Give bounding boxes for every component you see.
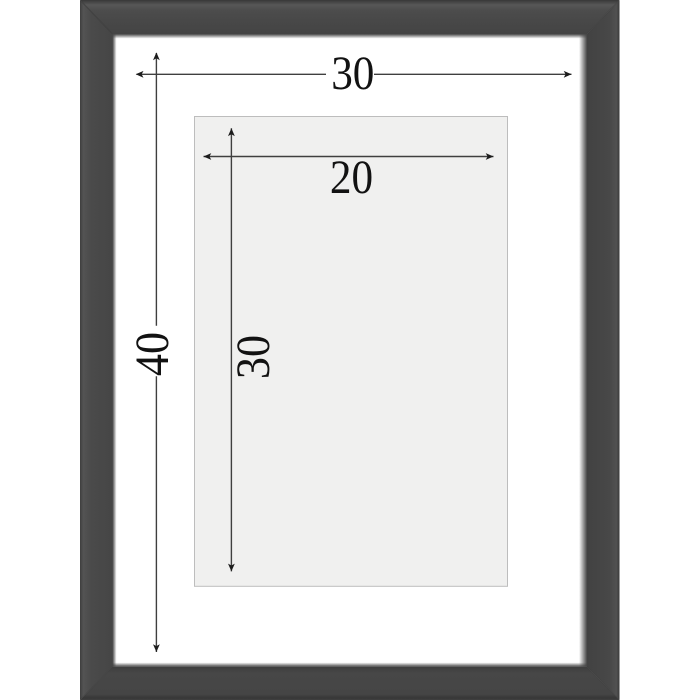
svg-text:30: 30: [226, 335, 279, 379]
svg-text:20: 20: [330, 150, 373, 204]
svg-text:30: 30: [331, 46, 374, 100]
svg-text:40: 40: [126, 332, 179, 376]
